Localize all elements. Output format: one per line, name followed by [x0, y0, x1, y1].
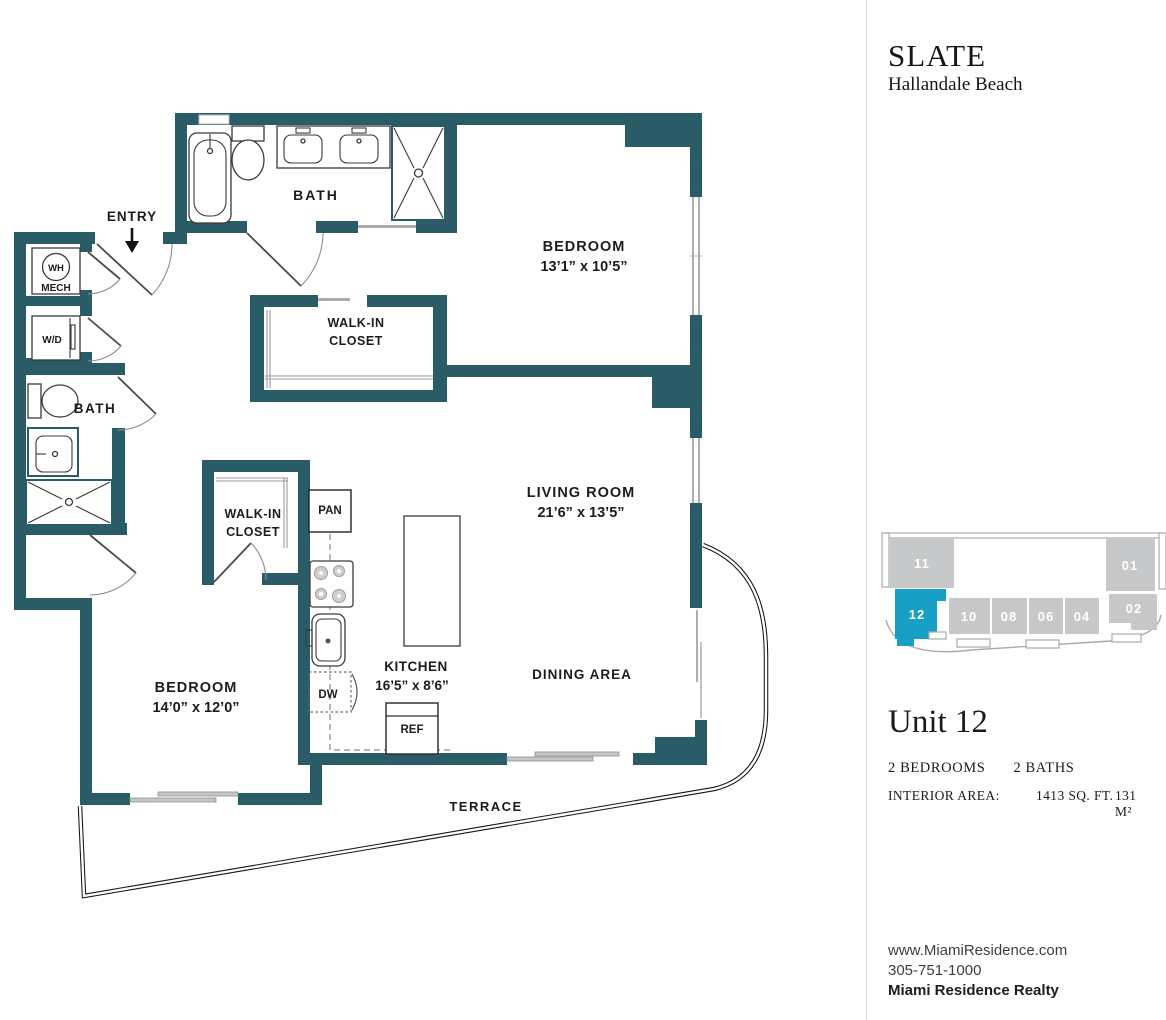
keyplan-label-08: 08 [1001, 609, 1017, 624]
living-window [690, 438, 702, 503]
stove-icon [310, 561, 353, 607]
refrigerator-label: REF [401, 724, 424, 736]
terrace-label: TERRACE [449, 799, 522, 814]
contact-website[interactable]: www.MiamiResidence.com [888, 941, 1067, 961]
bedroom1-dims: 13’1” x 10’5” [540, 259, 627, 275]
walkin1-label-2: CLOSET [329, 334, 383, 348]
hall-door [247, 233, 323, 286]
bedroom2-dims: 14’0” x 12’0” [152, 700, 239, 716]
info-panel: SLATE Hallandale Beach 11 12 10 08 0 [866, 0, 1166, 1020]
entry-arrow-icon [125, 228, 139, 253]
floorplan-page: ENTRY BATH WH MECH W/D BATH BEDROOM 13’1… [0, 0, 1166, 1020]
keyplan-label-10: 10 [961, 609, 977, 624]
mech-label: MECH [41, 283, 70, 294]
living-label: LIVING ROOM [527, 485, 635, 501]
dining-label: DINING AREA [532, 667, 632, 682]
entry-label: ENTRY [107, 209, 157, 224]
bay-window-lines [697, 610, 701, 718]
wh-closet-door [88, 252, 120, 294]
keyplan-label-02: 02 [1126, 601, 1142, 616]
bedroom2-label: BEDROOM [155, 680, 238, 696]
unit-title: Unit 12 [888, 704, 1153, 740]
wh-label: WH [48, 263, 64, 274]
interior-area-row: INTERIOR AREA: 1413 SQ. FT. 131 M² [888, 788, 1153, 806]
walkin2-label-1: WALK-IN [225, 507, 282, 521]
kitchen-island [404, 516, 460, 646]
keyplan-label-06: 06 [1038, 609, 1054, 624]
bathtub-icon [189, 133, 231, 223]
keyplan: 11 12 10 08 06 04 01 02 [866, 520, 1166, 660]
branding-block: SLATE Hallandale Beach [888, 40, 1023, 96]
bedroom1-window [690, 197, 702, 315]
wall-niche [199, 115, 229, 124]
area-m2: 131 M² [1115, 788, 1153, 820]
bath2-door [118, 377, 156, 430]
walkin2-label-2: CLOSET [226, 525, 280, 539]
kitchen-sink-icon [306, 614, 345, 666]
area-sqft: 1413 SQ. FT. [1036, 788, 1113, 804]
contact-block: www.MiamiResidence.com 305-751-1000 Miam… [888, 941, 1067, 1001]
kitchen-label: KITCHEN [384, 659, 448, 674]
baths-count: 2 BATHS [1013, 760, 1074, 776]
bedrooms-count: 2 BEDROOMS [888, 760, 985, 776]
interior-area-label: INTERIOR AREA: [888, 788, 1000, 804]
toilet-top-icon [232, 126, 264, 180]
contact-phone: 305-751-1000 [888, 961, 1067, 981]
kitchen-dims: 16’5” x 8’6” [375, 678, 449, 693]
bath1-opening [358, 225, 416, 228]
bath2-label: BATH [74, 401, 117, 416]
keyplan-label-11: 11 [914, 556, 930, 571]
contact-company: Miami Residence Realty [888, 981, 1067, 1001]
closet2-door [214, 543, 266, 582]
keyplan-label-12: 12 [909, 607, 925, 622]
pantry-label: PAN [318, 505, 341, 517]
closet1-opening [318, 298, 350, 301]
unit-info-block: Unit 12 2 BEDROOMS2 BATHS INTERIOR AREA:… [888, 704, 1153, 806]
wd-label: W/D [42, 335, 61, 346]
floorplan-drawing: ENTRY BATH WH MECH W/D BATH BEDROOM 13’1… [0, 0, 866, 1020]
unit-specs: 2 BEDROOMS2 BATHS [888, 760, 1153, 777]
wd-closet-door [88, 318, 121, 361]
double-vanity-icon [277, 126, 390, 168]
keyplan-label-04: 04 [1074, 609, 1090, 624]
bath2-sink-icon [28, 428, 78, 476]
toilet-left-icon [28, 384, 78, 418]
living-dims: 21’6” x 13’5” [537, 505, 624, 521]
shower-left-icon [26, 480, 112, 525]
walkin1-label-1: WALK-IN [328, 316, 385, 330]
keyplan-label-01: 01 [1122, 558, 1138, 573]
bath1-label: BATH [293, 187, 339, 203]
building-name: SLATE [888, 40, 1023, 72]
shower-top-icon [392, 126, 445, 220]
dishwasher-label: DW [318, 689, 337, 701]
bedroom1-label: BEDROOM [543, 239, 626, 255]
dining-sliding-door [507, 752, 619, 761]
building-location: Hallandale Beach [888, 74, 1023, 96]
keyplan-top-edge [886, 533, 1163, 538]
bedroom2-door [90, 535, 136, 595]
bedroom2-sliding-window [130, 792, 238, 802]
